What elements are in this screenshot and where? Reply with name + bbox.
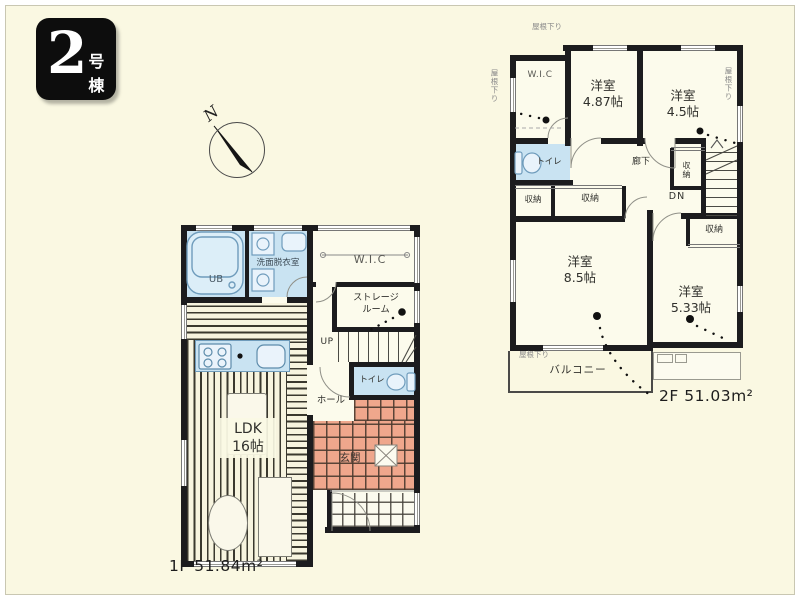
label-entrance: 玄関 xyxy=(326,452,374,466)
building-badge: 2 号棟 xyxy=(36,18,116,100)
label-toilet-1f: トイレ xyxy=(354,374,390,385)
stairs-winder-lines xyxy=(706,140,737,174)
label-room-45: 洋室 4.5帖 xyxy=(647,88,719,121)
label-closet-right: 収納 xyxy=(677,152,691,188)
label-hall: ホール xyxy=(310,395,352,407)
label-closet-left: 収納 xyxy=(513,194,553,205)
floorplan-page: 2 号棟 N xyxy=(0,0,800,600)
kitchen-point-marker xyxy=(237,353,242,358)
label-wic-1f: W.I.C xyxy=(340,253,400,267)
building-number: 2 xyxy=(47,24,87,82)
roof-note-right: 屋根下り xyxy=(721,56,733,112)
roof-note-left: 屋根下り xyxy=(487,58,499,114)
stairs-winder-lines xyxy=(402,335,416,362)
label-washroom: 洗面脱衣室 xyxy=(246,258,310,269)
dotted-lead-line xyxy=(370,318,393,330)
label-hallway: 廊下 xyxy=(621,157,661,169)
label-toilet-2f: トイレ xyxy=(529,156,569,167)
label-balcony: バルコニー xyxy=(523,364,633,378)
label-dn: DN xyxy=(657,191,697,203)
roof-note-top: 屋根下り xyxy=(524,22,570,32)
label-ub: UB xyxy=(198,273,234,286)
label-wic-2f: W.I.C xyxy=(515,70,565,82)
label-up: UP xyxy=(314,337,340,349)
door-arcs xyxy=(548,118,681,241)
floor1-plan: UB 洗面脱衣室 W.I.C ストレージ ルーム UP トイレ ホール LDK … xyxy=(170,225,422,573)
floor2-area-label: 2F 51.03m² xyxy=(659,387,753,405)
roof-note-balcony: 屋根下り xyxy=(511,350,557,360)
shoe-cabinet-x xyxy=(375,445,397,466)
floor1-area-label: 1F 51.84m² xyxy=(169,557,263,575)
label-room-533: 洋室 5.33帖 xyxy=(653,284,729,317)
label-closet-mid: 収納 xyxy=(559,194,621,206)
compass-circle xyxy=(209,122,265,178)
toilet-fixture-1f xyxy=(387,373,415,391)
label-room-85: 洋室 8.5帖 xyxy=(545,254,615,287)
label-ldk: LDK 16帖 xyxy=(220,418,276,458)
label-closet-bottom: 収納 xyxy=(689,225,739,237)
building-suffix: 号棟 xyxy=(88,48,116,96)
label-storage: ストレージ ルーム xyxy=(335,292,417,316)
label-room-487: 洋室 4.87帖 xyxy=(567,78,639,111)
